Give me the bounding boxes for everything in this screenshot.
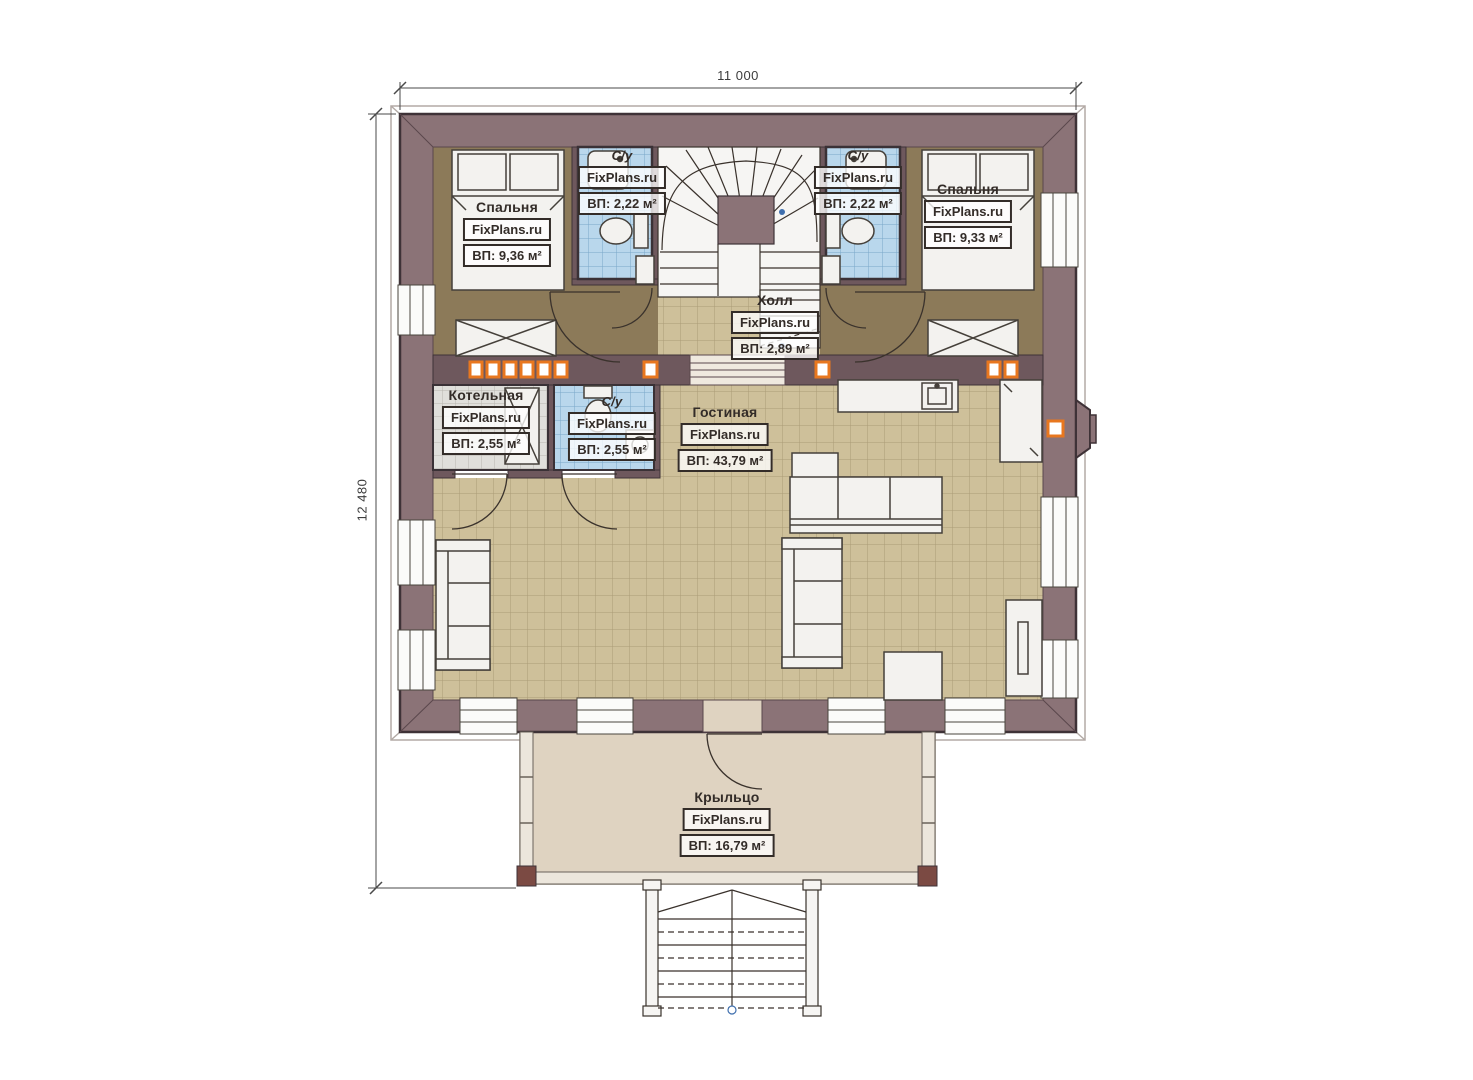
cabinet-right-bath (822, 256, 840, 284)
cabinet-left-bath (636, 256, 654, 284)
window-right-2 (1041, 497, 1078, 587)
sink-right (846, 151, 886, 189)
porch-corner-right (918, 866, 937, 886)
toilet-mid (584, 386, 612, 432)
window-left-3 (398, 630, 435, 690)
entry-stairs (643, 880, 821, 1016)
window-bottom-3 (828, 698, 885, 734)
dimension-width-label: 11 000 (717, 68, 759, 83)
window-left-2 (398, 520, 435, 585)
tv-cabinet (1006, 600, 1042, 696)
window-bottom-1 (460, 698, 517, 734)
window-right-3 (1041, 640, 1078, 698)
bed-right (922, 150, 1034, 290)
boiler-unit (505, 388, 539, 464)
wardrobe-right (928, 320, 1018, 356)
coffee-table (884, 652, 942, 700)
porch-corner-left (517, 866, 536, 886)
window-bottom-4 (945, 698, 1005, 734)
wardrobe-left (456, 320, 556, 356)
kitchen-counter (838, 380, 958, 412)
window-right-1 (1041, 193, 1078, 267)
sofa-left (436, 540, 490, 670)
window-left-1 (398, 285, 435, 335)
hall-passage (690, 355, 785, 385)
bed-left (452, 150, 564, 290)
entry-door-opening (703, 700, 762, 732)
porch-floor (520, 732, 935, 884)
living-floor-lower (433, 478, 1043, 700)
dimension-height-label: 12 480 (355, 479, 370, 522)
sofa-center (782, 538, 842, 668)
washer-mid (626, 430, 654, 460)
window-bottom-2 (577, 698, 633, 734)
sink-left (588, 151, 628, 189)
floor-plan-page: 11 000 12 480 Спальня FixPlans.ru ВП: 9,… (0, 0, 1473, 1080)
chimney-bay (1076, 400, 1090, 458)
floor-plan-drawing (0, 0, 1473, 1080)
stair-landing (718, 196, 774, 244)
cabinet-right-top (1000, 380, 1042, 462)
